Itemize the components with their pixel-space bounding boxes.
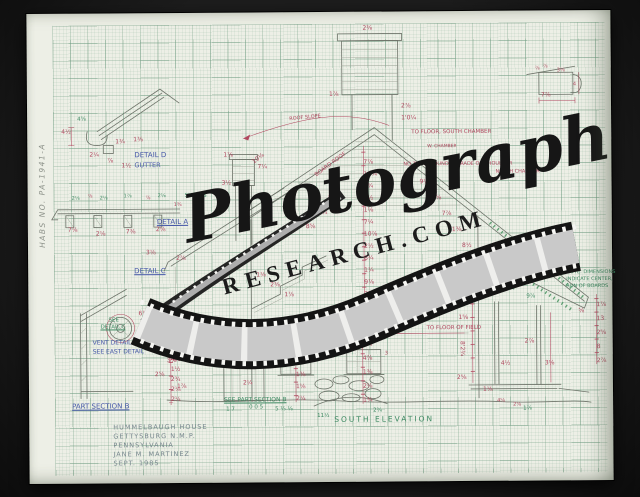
watermark-overlay: RESEARCH.COM Photograph <box>26 10 613 484</box>
graph-paper-sheet: DETAIL DGUTTERDETAIL ADETAIL CVENT DETAI… <box>26 10 613 484</box>
photo-mat-background: DETAIL DGUTTERDETAIL ADETAIL CVENT DETAI… <box>0 0 640 497</box>
